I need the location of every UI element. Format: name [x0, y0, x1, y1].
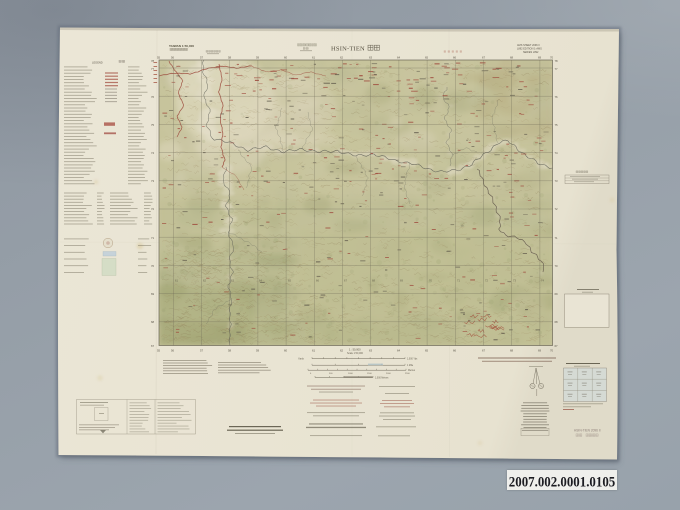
- svg-text:LEGEND: LEGEND: [92, 61, 103, 65]
- svg-text:57: 57: [200, 56, 204, 60]
- svg-text:TAIWAN 1:50,000: TAIWAN 1:50,000: [169, 44, 194, 48]
- svg-text:59: 59: [256, 349, 260, 353]
- svg-text:68: 68: [510, 56, 514, 60]
- svg-text:64: 64: [397, 56, 401, 60]
- svg-text:1 Mile: 1 Mile: [407, 365, 414, 367]
- svg-text:61: 61: [312, 56, 316, 60]
- svg-text:76: 76: [151, 95, 155, 99]
- svg-text:58: 58: [228, 56, 232, 60]
- svg-text:78: 78: [555, 59, 559, 63]
- svg-text:64: 64: [397, 349, 401, 353]
- svg-text:60: 60: [284, 349, 288, 353]
- svg-text:Yards: Yards: [298, 358, 305, 361]
- svg-text:Metres: Metres: [408, 369, 416, 372]
- svg-text:74: 74: [151, 151, 155, 155]
- svg-text:1,000 Metres: 1,000 Metres: [375, 376, 389, 379]
- svg-text:62: 62: [340, 349, 344, 353]
- svg-text:56: 56: [171, 56, 175, 60]
- svg-text:62: 62: [340, 56, 344, 60]
- svg-text:68: 68: [151, 320, 155, 324]
- svg-text:68: 68: [510, 349, 514, 353]
- svg-text:61: 61: [312, 349, 316, 353]
- svg-text:1 : 50,000: 1 : 50,000: [349, 348, 361, 352]
- svg-text:60: 60: [284, 56, 288, 60]
- svg-text:75: 75: [151, 123, 155, 127]
- svg-text:72: 72: [555, 207, 559, 211]
- svg-text:71: 71: [151, 236, 155, 240]
- svg-text:69: 69: [538, 349, 542, 353]
- svg-text:73: 73: [151, 179, 155, 183]
- svg-text:HSIN-TIEN 2096 II: HSIN-TIEN 2096 II: [574, 429, 601, 433]
- svg-text:SERIES L892: SERIES L892: [523, 51, 539, 54]
- svg-text:Scale 1:50,000: Scale 1:50,000: [347, 352, 364, 355]
- svg-text:55: 55: [157, 349, 161, 353]
- svg-text:75: 75: [555, 123, 559, 127]
- svg-text:67: 67: [482, 349, 486, 353]
- svg-text:67: 67: [555, 344, 559, 348]
- svg-text:63: 63: [369, 349, 373, 353]
- svg-text:68: 68: [555, 320, 559, 324]
- svg-text:59: 59: [256, 56, 260, 60]
- svg-text:67: 67: [482, 56, 486, 60]
- svg-text:69: 69: [538, 56, 542, 60]
- svg-text:73: 73: [555, 179, 559, 183]
- svg-text:77: 77: [555, 67, 559, 71]
- svg-text:70: 70: [550, 349, 554, 353]
- svg-text:65: 65: [425, 349, 429, 353]
- svg-text:56: 56: [171, 349, 175, 353]
- svg-text:72: 72: [151, 207, 155, 211]
- svg-text:74: 74: [555, 151, 559, 155]
- svg-text:70: 70: [555, 264, 559, 268]
- svg-text:76: 76: [555, 95, 559, 99]
- svg-text:69: 69: [151, 292, 155, 296]
- svg-text:1,000 Yds: 1,000 Yds: [407, 359, 418, 361]
- svg-text:63: 63: [369, 56, 373, 60]
- svg-text:71: 71: [555, 236, 559, 240]
- svg-text:69: 69: [555, 292, 559, 296]
- svg-text:65: 65: [425, 56, 429, 60]
- svg-text:66: 66: [453, 56, 457, 60]
- svg-text:55: 55: [157, 56, 161, 60]
- svg-text:70: 70: [550, 56, 554, 60]
- svg-text:66: 66: [453, 349, 457, 353]
- svg-text:70: 70: [151, 264, 155, 268]
- svg-text:67: 67: [151, 344, 155, 348]
- svg-text:57: 57: [200, 349, 204, 353]
- svg-text:58: 58: [228, 349, 232, 353]
- svg-text:HSIN-TIEN: HSIN-TIEN: [331, 46, 365, 53]
